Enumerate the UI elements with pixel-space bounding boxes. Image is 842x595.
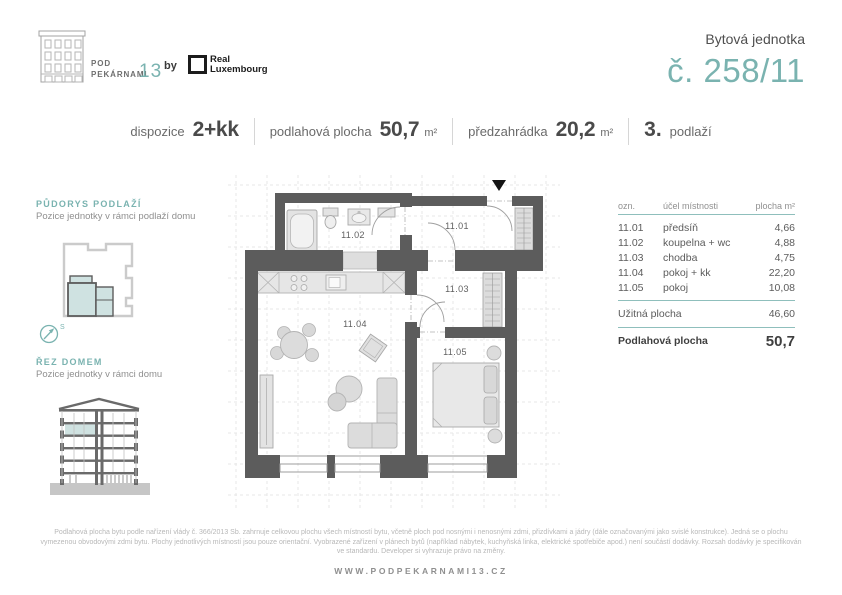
cell-ucel: pokoj	[663, 282, 745, 294]
usable-area-value: 46,60	[745, 308, 795, 320]
spec-separator	[628, 118, 629, 145]
spec-zahradka-label: předzahrádka	[468, 124, 548, 139]
sidebar-section-subtitle: Pozice jednotky v rámci domu	[36, 369, 162, 380]
cell-ozn: 11.01	[618, 222, 663, 234]
table-row: 11.05 pokoj 10,08	[618, 280, 795, 295]
cell-plocha: 22,20	[745, 267, 795, 279]
brand-by: by	[164, 60, 177, 72]
table-row: 11.02 koupelna + wc 4,88	[618, 235, 795, 250]
brand-number: 13	[139, 61, 162, 83]
cell-plocha: 4,66	[745, 222, 795, 234]
spec-separator	[452, 118, 453, 145]
room-label-1102: 11.02	[341, 230, 365, 240]
footer-website: WWW.PODPEKARNAMI13.CZ	[0, 566, 842, 576]
spec-row: dispozice 2+kk podlahová plocha 50,7 m² …	[0, 118, 842, 145]
col-header-plocha: plocha m²	[745, 201, 795, 211]
sidebar-floorplan-subtitle: Pozice jednotky v rámci podlaží domu	[36, 211, 195, 222]
unit-type-label: Bytová jednotka	[705, 31, 805, 47]
cell-ozn: 11.04	[618, 267, 663, 279]
spec-dispozice-value: 2+kk	[193, 118, 239, 142]
floor-area-row: Podlahová plocha 50,7	[618, 328, 795, 354]
cell-ucel: předsíň	[663, 222, 745, 234]
usable-area-row: Užitná plocha 46,60	[618, 301, 795, 327]
cell-plocha: 10,08	[745, 282, 795, 294]
room-label-1103: 11.03	[445, 284, 469, 294]
partner-name: Real Luxembourg	[210, 55, 268, 74]
room-label-1105: 11.05	[443, 347, 467, 357]
partner-name-line2: Luxembourg	[210, 65, 268, 75]
table-row: 11.03 chodba 4,75	[618, 250, 795, 265]
usable-area-label: Užitná plocha	[618, 308, 745, 320]
compass-icon: S	[38, 320, 70, 346]
col-header-ozn: ozn.	[618, 201, 663, 211]
floor-area-value: 50,7	[735, 333, 795, 350]
col-header-ucel: účel místnosti	[663, 201, 745, 211]
partner-logo-icon	[188, 55, 207, 74]
sidebar-floorplan-title: PŮDORYS PODLAŽÍ	[36, 199, 142, 209]
cell-plocha: 4,88	[745, 237, 795, 249]
legal-disclaimer: Podlahová plocha bytu podle nařízení vlá…	[40, 528, 802, 557]
spec-podlazi-label: podlaží	[670, 124, 712, 139]
sidebar-section-title: ŘEZ DOMEM	[36, 357, 103, 367]
cell-plocha: 4,75	[745, 252, 795, 264]
unit-number: č. 258/11	[667, 52, 805, 90]
room-table: ozn. účel místnosti plocha m² 11.01 před…	[618, 198, 795, 354]
spec-podlazi-value: 3.	[644, 118, 662, 142]
room-label-1104: 11.04	[343, 319, 367, 329]
spec-dispozice-label: dispozice	[130, 124, 184, 139]
unit-datasheet: POD PEKÁRNAMI 13 by Real Luxembourg Byto…	[0, 0, 842, 595]
cell-ozn: 11.05	[618, 282, 663, 294]
room-table-header: ozn. účel místnosti plocha m²	[618, 198, 795, 214]
cell-ucel: chodba	[663, 252, 745, 264]
spec-zahradka-value: 20,2	[556, 118, 596, 142]
floorplan-drawing: 11.01 11.02 11.03 11.04 11.05	[228, 175, 560, 510]
floor-position-minimap	[58, 240, 138, 320]
building-logo-icon	[37, 28, 87, 84]
cell-ozn: 11.02	[618, 237, 663, 249]
floor-area-label: Podlahová plocha	[618, 335, 735, 347]
spec-plocha-unit: m²	[424, 127, 437, 139]
room-label-1101: 11.01	[445, 221, 469, 231]
building-section-drawing	[50, 396, 150, 496]
cell-ucel: pokoj + kk	[663, 267, 745, 279]
table-row: 11.04 pokoj + kk 22,20	[618, 265, 795, 280]
table-row: 11.01 předsíň 4,66	[618, 220, 795, 235]
spec-separator	[254, 118, 255, 145]
spec-plocha-label: podlahová plocha	[270, 124, 372, 139]
compass-north-label: S	[60, 324, 65, 331]
spec-plocha-value: 50,7	[380, 118, 420, 142]
spec-zahradka-unit: m²	[600, 127, 613, 139]
cell-ozn: 11.03	[618, 252, 663, 264]
cell-ucel: koupelna + wc	[663, 237, 745, 249]
